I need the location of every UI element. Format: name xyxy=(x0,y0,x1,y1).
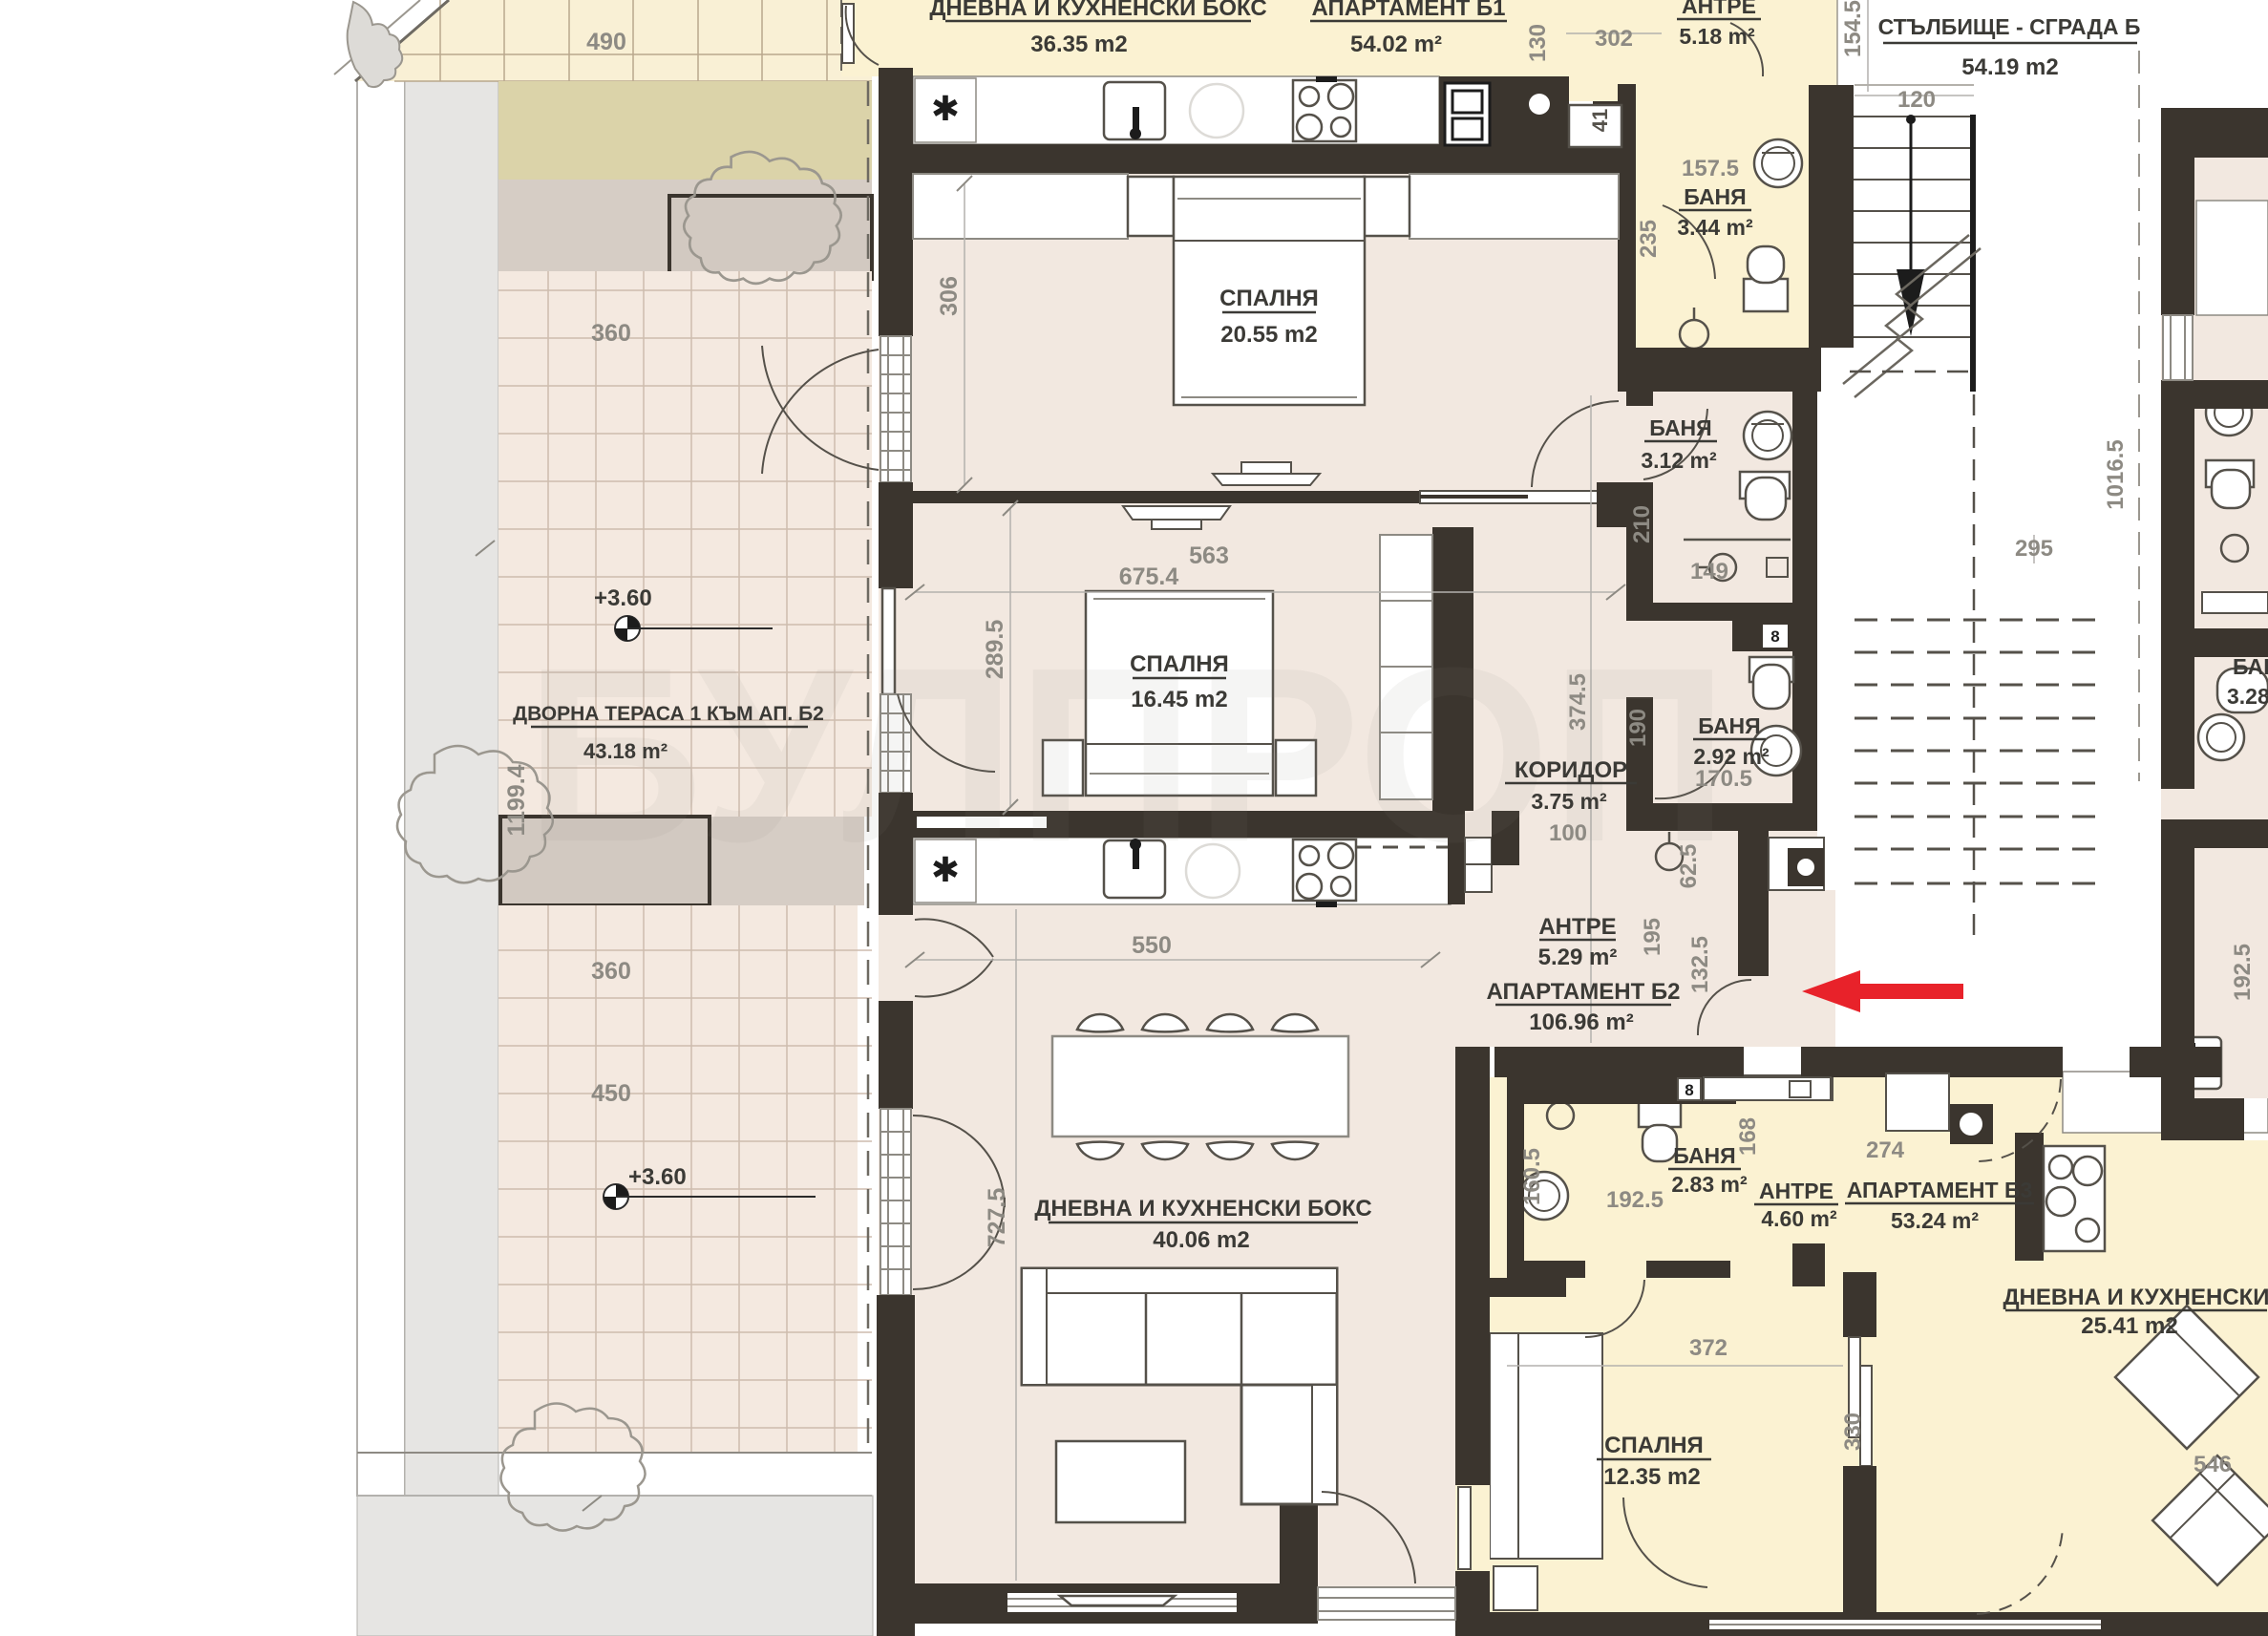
svg-text:54.02 m²: 54.02 m² xyxy=(1350,32,1442,57)
svg-text:БАНЯ: БАНЯ xyxy=(1649,415,1711,440)
svg-text:360: 360 xyxy=(591,958,631,985)
svg-text:727.5: 727.5 xyxy=(984,1188,1010,1248)
svg-text:550: 550 xyxy=(1132,932,1172,959)
svg-text:195: 195 xyxy=(1640,918,1665,956)
svg-text:330: 330 xyxy=(1840,1413,1866,1451)
svg-text:16.45 m2: 16.45 m2 xyxy=(1131,687,1227,712)
svg-text:5.29 m²: 5.29 m² xyxy=(1538,945,1618,970)
svg-text:490: 490 xyxy=(586,29,626,55)
svg-text:106.96 m²: 106.96 m² xyxy=(1529,1009,1633,1035)
svg-text:✱: ✱ xyxy=(931,89,960,128)
svg-text:3.44 m²: 3.44 m² xyxy=(1677,215,1753,240)
svg-text:ДНЕВНА И КУХНЕНСКИ БОКС: ДНЕВНА И КУХНЕНСКИ БОКС xyxy=(929,0,1266,21)
svg-text:СПАЛНЯ: СПАЛНЯ xyxy=(1130,651,1229,677)
svg-text:36.35 m2: 36.35 m2 xyxy=(1030,32,1127,57)
svg-text:302: 302 xyxy=(1595,26,1633,52)
svg-text:БАНЯ: БАНЯ xyxy=(1673,1143,1735,1168)
svg-text:БУЛПРОП: БУЛПРОП xyxy=(525,617,1729,894)
svg-text:8: 8 xyxy=(1685,1081,1693,1099)
svg-text:АПАРТАМЕНТ Б3: АПАРТАМЕНТ Б3 xyxy=(1847,1178,2033,1202)
svg-text:БАНЯ: БАНЯ xyxy=(2233,654,2268,679)
svg-text:ДНЕВНА И КУХНЕНСКИ БОКС: ДНЕВНА И КУХНЕНСКИ БОКС xyxy=(1034,1196,1371,1222)
svg-text:+3.60: +3.60 xyxy=(628,1164,687,1190)
svg-text:1016.5: 1016.5 xyxy=(2103,439,2129,509)
svg-text:192.5: 192.5 xyxy=(1606,1187,1664,1213)
svg-text:306: 306 xyxy=(936,276,963,316)
svg-text:СПАЛНЯ: СПАЛНЯ xyxy=(1219,286,1319,311)
svg-text:132.5: 132.5 xyxy=(1687,936,1713,993)
svg-text:3.12 m²: 3.12 m² xyxy=(1641,448,1717,473)
svg-text:360: 360 xyxy=(591,320,631,347)
svg-text:130: 130 xyxy=(1525,24,1551,62)
svg-text:41: 41 xyxy=(1588,109,1612,132)
svg-text:546: 546 xyxy=(2194,1452,2232,1477)
svg-text:12.35 m2: 12.35 m2 xyxy=(1603,1464,1700,1490)
svg-text:+3.60: +3.60 xyxy=(594,585,652,611)
svg-text:157.5: 157.5 xyxy=(1682,156,1739,181)
svg-text:120: 120 xyxy=(1897,87,1936,113)
svg-text:168: 168 xyxy=(1735,1117,1761,1156)
svg-text:450: 450 xyxy=(591,1080,631,1107)
svg-text:БАНЯ: БАНЯ xyxy=(1684,184,1746,209)
svg-text:СТЪЛБИЩЕ - СГРАДА Б: СТЪЛБИЩЕ - СГРАДА Б xyxy=(1878,14,2141,39)
svg-text:372: 372 xyxy=(1689,1335,1727,1361)
svg-text:СПАЛНЯ: СПАЛНЯ xyxy=(1604,1433,1704,1458)
svg-text:8: 8 xyxy=(1770,627,1779,646)
svg-text:4.60 m²: 4.60 m² xyxy=(1761,1206,1837,1231)
svg-text:295: 295 xyxy=(2015,536,2053,562)
svg-text:АНТРЕ: АНТРЕ xyxy=(1538,914,1616,940)
svg-text:АНТРЕ: АНТРЕ xyxy=(1682,0,1756,18)
svg-text:154.5: 154.5 xyxy=(1840,0,1866,57)
svg-text:40.06 m2: 40.06 m2 xyxy=(1153,1227,1249,1253)
svg-text:160.5: 160.5 xyxy=(1519,1148,1545,1205)
svg-text:2.92 m²: 2.92 m² xyxy=(1693,744,1770,769)
svg-text:53.24 m²: 53.24 m² xyxy=(1891,1208,1979,1233)
svg-text:25.41 m2: 25.41 m2 xyxy=(2081,1313,2177,1339)
svg-text:210: 210 xyxy=(1629,505,1655,543)
svg-text:563: 563 xyxy=(1189,542,1229,569)
svg-text:АНТРЕ: АНТРЕ xyxy=(1759,1179,1833,1203)
svg-text:274: 274 xyxy=(1866,1137,1905,1163)
svg-text:149: 149 xyxy=(1690,559,1728,584)
svg-text:192.5: 192.5 xyxy=(2230,944,2256,1001)
svg-text:КОРИДОР: КОРИДОР xyxy=(1515,757,1627,783)
svg-text:54.19 m2: 54.19 m2 xyxy=(1961,54,2058,80)
svg-text:20.55 m2: 20.55 m2 xyxy=(1220,322,1317,348)
svg-text:ДВОРНА ТЕРАСА 1 КЪМ АП. Б2: ДВОРНА ТЕРАСА 1 КЪМ АП. Б2 xyxy=(513,703,824,725)
svg-text:АПАРТАМЕНТ Б2: АПАРТАМЕНТ Б2 xyxy=(1486,979,1680,1005)
svg-text:3.28: 3.28 xyxy=(2227,684,2268,709)
svg-text:АПАРТАМЕНТ Б1: АПАРТАМЕНТ Б1 xyxy=(1311,0,1505,21)
svg-text:675.4: 675.4 xyxy=(1119,563,1179,590)
svg-text:2.83 m²: 2.83 m² xyxy=(1671,1172,1748,1197)
svg-text:235: 235 xyxy=(1636,220,1662,258)
svg-text:5.18 m²: 5.18 m² xyxy=(1679,24,1755,49)
svg-text:ДНЕВНА И КУХНЕНСКИ: ДНЕВНА И КУХНЕНСКИ xyxy=(2003,1285,2268,1310)
svg-text:43.18 m²: 43.18 m² xyxy=(583,739,668,763)
svg-text:БАНЯ: БАНЯ xyxy=(1698,713,1760,738)
svg-text:3.75 m²: 3.75 m² xyxy=(1531,789,1607,814)
